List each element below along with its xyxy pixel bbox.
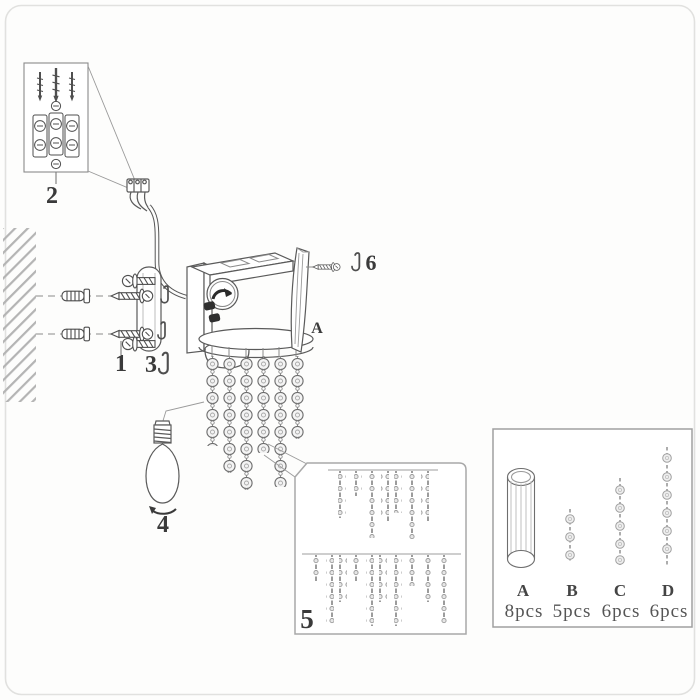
hanging-hook-icon bbox=[352, 253, 359, 270]
bead-strand bbox=[271, 356, 288, 487]
bead-strand bbox=[288, 356, 305, 439]
light-bulb bbox=[146, 402, 204, 514]
bead-strand bbox=[255, 356, 272, 453]
diagram-artwork bbox=[0, 0, 700, 700]
wall-anchor bbox=[62, 289, 90, 303]
panel-screw bbox=[313, 263, 340, 272]
assembly-diagram: 2 1 3 4 5 6 A A B C D 8pcs 5pcs 6pcs 6pc… bbox=[0, 0, 700, 700]
bead-strand bbox=[204, 356, 221, 446]
callout-2: 2 bbox=[46, 184, 58, 208]
callout-6: 6 bbox=[366, 252, 377, 274]
legend-letter-a: A bbox=[517, 582, 529, 599]
panel-label-a: A bbox=[311, 321, 323, 337]
bead-strand bbox=[221, 356, 238, 473]
bead-strand bbox=[238, 356, 255, 490]
legend-count-d: 6pcs bbox=[650, 602, 689, 621]
legend-count-b: 5pcs bbox=[553, 602, 592, 621]
mounting-screw bbox=[111, 327, 153, 341]
hanging-hook-icon bbox=[159, 353, 168, 374]
wall-section bbox=[3, 228, 36, 402]
legend-letter-d: D bbox=[662, 582, 674, 599]
callout-5: 5 bbox=[300, 606, 314, 633]
callout-1: 1 bbox=[115, 352, 127, 376]
panel-fasteners bbox=[306, 253, 359, 271]
mounting-screw bbox=[111, 289, 153, 303]
terminal-block-detail bbox=[24, 63, 136, 190]
legend-letter-b: B bbox=[566, 582, 577, 599]
legend-count-c: 6pcs bbox=[602, 602, 641, 621]
callout-3: 3 bbox=[145, 353, 157, 377]
wall-anchor bbox=[62, 327, 90, 341]
legend-count-a: 8pcs bbox=[505, 602, 544, 621]
legend-letter-c: C bbox=[614, 582, 626, 599]
callout-4: 4 bbox=[157, 513, 169, 537]
legend-part-b-strand bbox=[566, 509, 575, 562]
strand-detail-box bbox=[264, 444, 466, 634]
